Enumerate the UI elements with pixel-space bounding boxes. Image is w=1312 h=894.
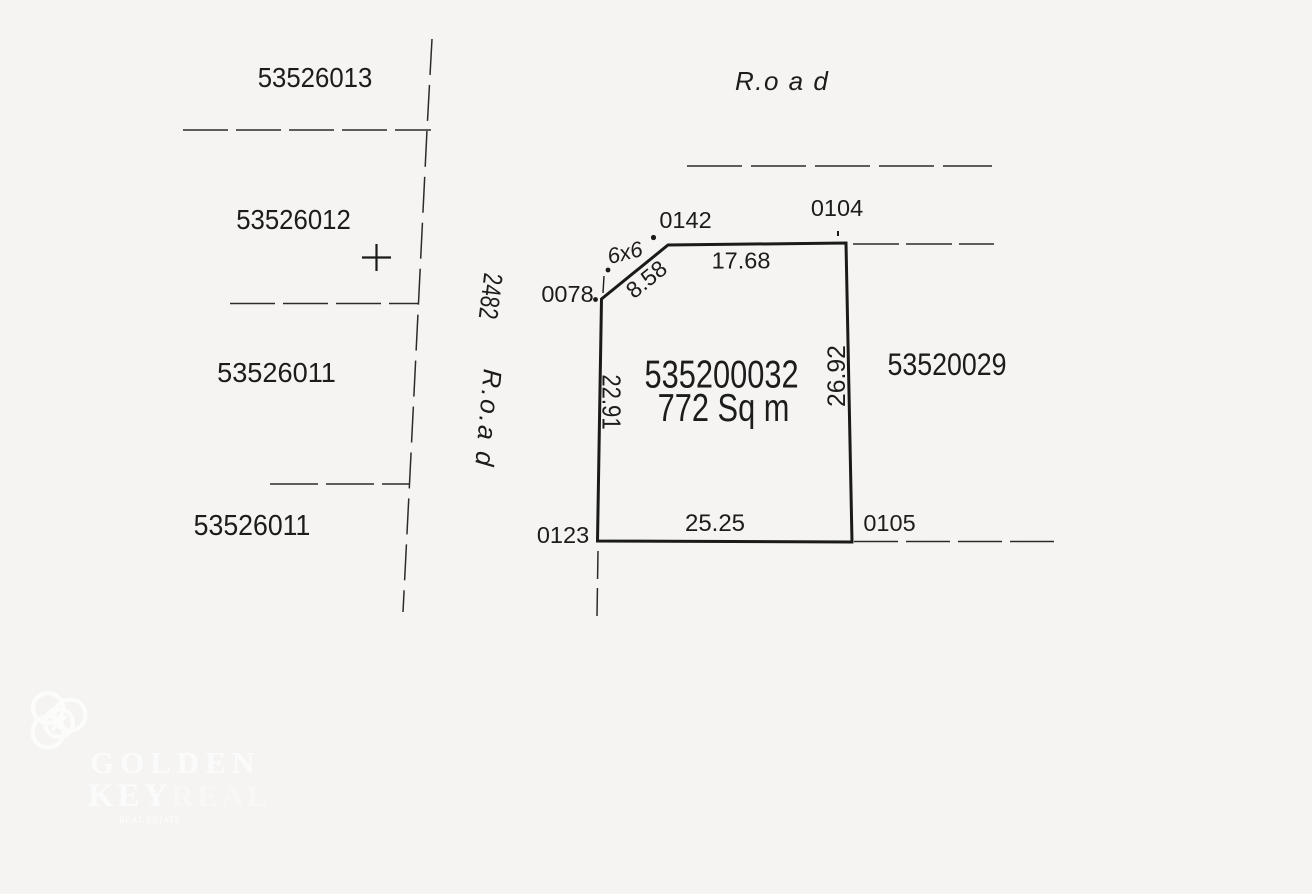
svg-text:0104: 0104 (811, 195, 863, 221)
svg-text:53526012: 53526012 (236, 204, 351, 235)
svg-text:25.25: 25.25 (685, 510, 745, 537)
svg-text:0105: 0105 (863, 510, 915, 536)
svg-text:R.o a d: R.o a d (735, 66, 829, 96)
svg-text:2482: 2482 (472, 271, 508, 321)
svg-text:772 Sq m: 772 Sq m (658, 387, 790, 430)
svg-text:53520029: 53520029 (887, 348, 1006, 382)
svg-text:53526011: 53526011 (217, 357, 336, 388)
svg-text:26.92: 26.92 (823, 345, 851, 407)
svg-text:0142: 0142 (659, 207, 711, 233)
svg-text:22.91: 22.91 (596, 374, 625, 429)
svg-text:REAL: REAL (172, 780, 271, 813)
svg-text:REAL ESTATE: REAL ESTATE (119, 815, 181, 825)
svg-text:GOLDEN: GOLDEN (90, 745, 260, 780)
svg-text:53526013: 53526013 (258, 62, 373, 93)
svg-text:0123: 0123 (537, 522, 589, 548)
svg-text:0078: 0078 (541, 281, 593, 307)
svg-text:53526011: 53526011 (194, 509, 311, 541)
svg-text:17.68: 17.68 (712, 248, 771, 274)
svg-text:KEY: KEY (88, 778, 172, 814)
